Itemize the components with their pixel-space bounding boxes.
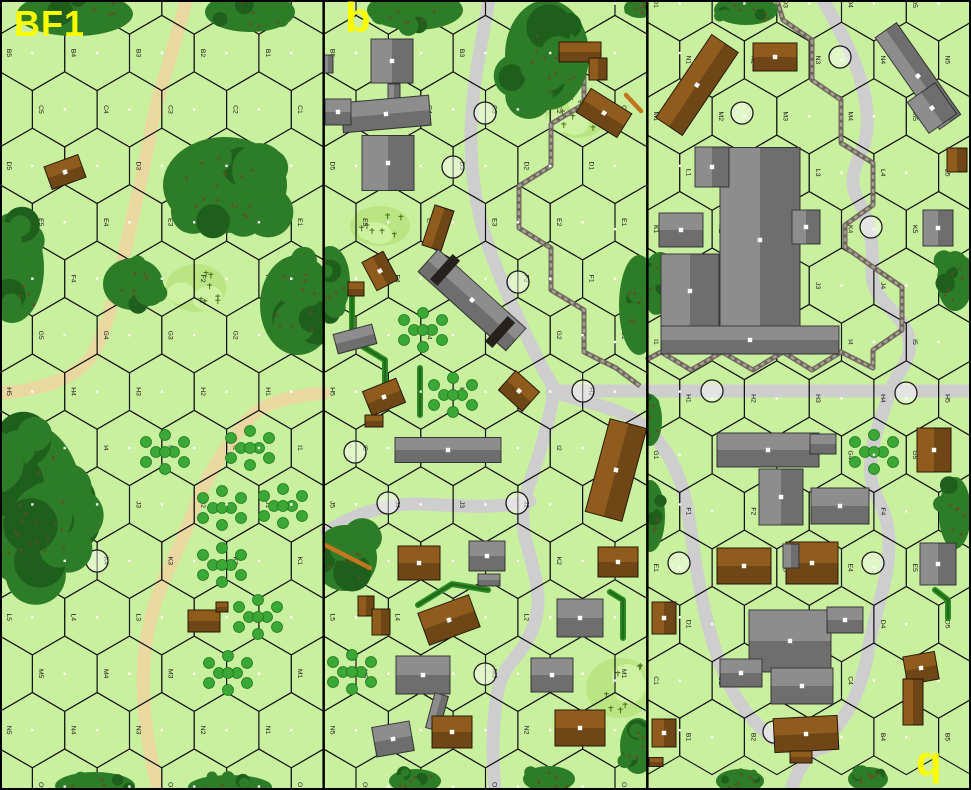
hex-label-left-D3: D3 — [134, 162, 141, 171]
building-stone-63 — [827, 607, 863, 633]
hex-label-right-F4: F4 — [879, 507, 886, 515]
hex-label-middle-H5: H5 — [329, 387, 336, 396]
hex-label-right-G1: G1 — [652, 450, 659, 459]
hex-label-right-K5: K5 — [911, 225, 918, 234]
hex-label-middle-J3: J3 — [458, 501, 465, 508]
building-wood-65 — [903, 679, 923, 725]
hex-label-left-H5: H5 — [5, 387, 12, 396]
building-stone-55 — [920, 543, 956, 585]
hex-label-right-D5: D5 — [943, 620, 950, 629]
hex-label-left-L4: L4 — [70, 614, 77, 622]
hex-label-middle-D1: D1 — [587, 162, 594, 171]
building-stone-53 — [811, 488, 869, 524]
hex-label-left-H1: H1 — [264, 387, 271, 396]
hex-label-left-N1: N1 — [264, 726, 271, 735]
hex-label-middle-E5: E5 — [361, 218, 368, 227]
hex-label-left-N3: N3 — [134, 726, 141, 735]
building-wood-27 — [598, 547, 638, 577]
building-wood-2 — [216, 602, 228, 612]
hex-label-middle-E2: E2 — [555, 218, 562, 227]
circle-marker-14 — [668, 552, 690, 574]
hex-label-right-F1: F1 — [685, 507, 692, 515]
hex-label-right-N3: N3 — [814, 56, 821, 65]
hex-label-left-B2: B2 — [199, 49, 206, 58]
circle-marker-1 — [474, 102, 496, 124]
hex-label-right-D1: D1 — [685, 620, 692, 629]
brush-patch-0 — [166, 264, 226, 312]
hex-label-left-G2: G2 — [231, 331, 238, 340]
hex-label-left-B5: B5 — [5, 49, 12, 58]
hex-label-right-L3: L3 — [814, 169, 821, 177]
hex-label-left-N2: N2 — [199, 726, 206, 735]
hex-label-middle-F1: F1 — [587, 275, 594, 283]
building-stone-46 — [695, 147, 729, 187]
hex-label-middle-L4: L4 — [393, 614, 400, 622]
building-stone-31 — [557, 599, 603, 637]
circle-marker-5 — [344, 441, 366, 463]
hex-label-left-C5: C5 — [37, 105, 44, 114]
hex-label-left-G3: G3 — [167, 331, 174, 340]
hex-label-right-B2: B2 — [749, 733, 756, 742]
circle-marker-10 — [731, 102, 753, 124]
building-wood-39 — [753, 43, 797, 71]
circle-marker-8 — [474, 663, 496, 685]
building-stone-45 — [661, 254, 719, 328]
hex-label-right-H4: H4 — [879, 394, 886, 403]
building-wood-66 — [773, 715, 839, 752]
hex-label-right-E4: E4 — [846, 564, 853, 573]
hex-label-middle-D2: D2 — [523, 162, 530, 171]
building-wood-10 — [589, 58, 607, 80]
building-stone-58 — [783, 544, 799, 568]
brush-patch-2 — [350, 206, 410, 246]
hex-label-right-I5: I5 — [911, 339, 918, 345]
circle-marker-13 — [895, 382, 917, 404]
hex-label-middle-G2: G2 — [555, 331, 562, 340]
hex-label-left-F4: F4 — [70, 275, 77, 283]
hex-label-left-L5: L5 — [5, 614, 12, 622]
hex-label-right-H1: H1 — [685, 394, 692, 403]
circle-marker-3 — [507, 271, 529, 293]
hex-label-right-H5: H5 — [943, 394, 950, 403]
hex-label-right-M2: M2 — [717, 112, 724, 122]
building-stone-50 — [717, 433, 819, 467]
wargame-hex-map: A1A2A3A4A5B1B2B3B4B5C1C2C3C4C5D1D2D3D4D5… — [0, 0, 971, 790]
hex-label-left-N5: N5 — [5, 726, 12, 735]
hex-label-right-M4: M4 — [846, 112, 853, 122]
hex-label-left-C3: C3 — [167, 105, 174, 114]
woods-2 — [163, 137, 293, 238]
hex-label-right-H3: H3 — [814, 394, 821, 403]
building-wood-56 — [717, 548, 771, 584]
building-stone-52 — [810, 434, 836, 454]
hex-map-canvas[interactable]: A1A2A3A4A5B1B2B3B4B5C1C2C3C4C5D1D2D3D4D5… — [0, 0, 971, 790]
circle-marker-15 — [862, 552, 884, 574]
hex-label-left-K3: K3 — [167, 557, 174, 566]
building-wood-69 — [649, 758, 663, 767]
hex-label-left-D5: D5 — [5, 162, 12, 171]
hex-label-middle-K2: K2 — [555, 557, 562, 566]
hex-label-left-I4: I4 — [102, 445, 109, 451]
hex-label-right-B5: B5 — [943, 733, 950, 742]
building-stone-51 — [759, 469, 803, 525]
hex-label-left-M4: M4 — [102, 669, 109, 679]
hex-label-middle-N2: N2 — [523, 726, 530, 735]
building-wood-13 — [348, 282, 364, 296]
building-stone-62 — [720, 659, 762, 687]
building-stone-6 — [325, 99, 351, 125]
building-stone-32 — [396, 656, 450, 694]
hex-label-right-I1: I1 — [652, 339, 659, 345]
hex-label-left-H4: H4 — [70, 387, 77, 396]
circle-marker-4 — [572, 380, 594, 402]
hex-label-right-E1: E1 — [652, 564, 659, 573]
building-stone-25 — [469, 541, 505, 571]
hex-label-left-E4: E4 — [102, 218, 109, 227]
hex-label-middle-N5: N5 — [329, 726, 336, 735]
building-stone-3 — [371, 39, 413, 83]
hex-label-left-G4: G4 — [102, 331, 109, 340]
hex-label-left-C4: C4 — [102, 105, 109, 114]
hex-label-right-N5: N5 — [943, 56, 950, 65]
building-wood-68 — [652, 719, 676, 747]
hex-label-left-B1: B1 — [264, 49, 271, 58]
building-wood-29 — [372, 609, 390, 635]
building-wood-24 — [398, 546, 440, 580]
hex-label-right-B1: B1 — [685, 733, 692, 742]
building-stone-44 — [720, 148, 800, 333]
building-stone-47 — [659, 213, 703, 247]
circle-marker-6 — [377, 492, 399, 514]
hex-label-right-E5: E5 — [911, 564, 918, 573]
building-wood-21 — [365, 415, 383, 427]
hex-label-middle-D5: D5 — [329, 162, 336, 171]
building-wood-54 — [917, 428, 951, 472]
woods-25 — [848, 765, 888, 790]
hex-label-middle-L5: L5 — [329, 614, 336, 622]
hex-label-left-N4: N4 — [70, 726, 77, 735]
circle-marker-2 — [442, 156, 464, 178]
building-stone-49 — [661, 326, 839, 354]
hex-label-left-I1: I1 — [296, 445, 303, 451]
hex-label-left-F2: F2 — [199, 275, 206, 283]
circle-marker-9 — [829, 46, 851, 68]
building-wood-59 — [652, 602, 676, 634]
building-stone-7 — [362, 136, 414, 191]
hex-label-left-C1: C1 — [296, 105, 303, 114]
building-wood-37 — [555, 710, 605, 746]
building-stone-34 — [531, 658, 573, 692]
hex-label-left-H2: H2 — [199, 387, 206, 396]
hex-label-left-L3: L3 — [134, 614, 141, 622]
hex-label-left-B3: B3 — [134, 49, 141, 58]
building-stone-61 — [771, 668, 833, 704]
hex-label-right-N4: N4 — [879, 56, 886, 65]
building-stone-22 — [395, 438, 501, 463]
hex-label-right-J3: J3 — [814, 282, 821, 289]
building-wood-67 — [790, 751, 812, 763]
hex-label-right-D4: D4 — [879, 620, 886, 629]
building-stone-35 — [372, 721, 415, 757]
hex-label-middle-B3: B3 — [458, 49, 465, 58]
hex-label-right-L1: L1 — [685, 169, 692, 177]
building-wood-1 — [188, 610, 220, 632]
hex-label-middle-E1: E1 — [620, 218, 627, 227]
hex-label-right-K1: K1 — [652, 225, 659, 234]
circle-marker-7 — [506, 492, 528, 514]
hex-label-left-M5: M5 — [37, 669, 44, 679]
building-wood-42 — [947, 148, 967, 172]
building-wood-36 — [432, 716, 472, 748]
hex-label-right-B4: B4 — [879, 733, 886, 742]
hex-label-right-N1: N1 — [685, 56, 692, 65]
hex-label-right-L4: L4 — [879, 169, 886, 177]
hex-label-left-G5: G5 — [37, 331, 44, 340]
building-stone-48 — [792, 210, 820, 244]
hex-label-right-C1: C1 — [652, 676, 659, 685]
hex-label-right-I4: I4 — [846, 339, 853, 345]
hex-label-right-H2: H2 — [749, 394, 756, 403]
building-stone-43 — [923, 210, 953, 246]
hex-label-middle-M1: M1 — [620, 669, 627, 679]
hex-label-left-M3: M3 — [167, 669, 174, 679]
building-stone-26 — [478, 574, 500, 586]
hex-label-left-B4: B4 — [70, 49, 77, 58]
hex-label-right-C4: C4 — [846, 676, 853, 685]
hex-label-middle-L2: L2 — [523, 614, 530, 622]
hex-label-right-J4: J4 — [879, 282, 886, 289]
hex-label-middle-J5: J5 — [329, 501, 336, 508]
hex-label-left-J3: J3 — [134, 501, 141, 508]
hex-label-left-E1: E1 — [296, 218, 303, 227]
hex-label-left-C2: C2 — [231, 105, 238, 114]
hex-label-middle-I2: I2 — [555, 445, 562, 451]
hex-label-right-M3: M3 — [782, 112, 789, 122]
hex-label-middle-E3: E3 — [490, 218, 497, 227]
hex-label-left-M1: M1 — [296, 669, 303, 679]
hex-label-left-H3: H3 — [134, 387, 141, 396]
hex-label-right-F2: F2 — [749, 507, 756, 515]
circle-marker-11 — [860, 216, 882, 238]
hex-label-left-K1: K1 — [296, 557, 303, 566]
